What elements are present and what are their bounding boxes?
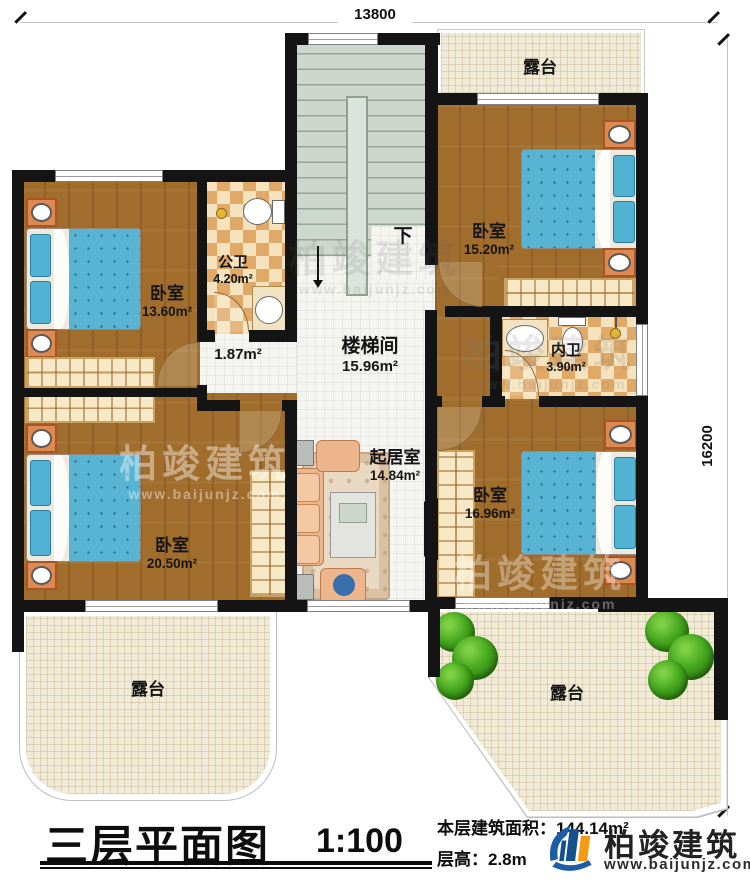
bush [436, 662, 474, 700]
room-label-bedroom-bottom-left: 卧室 20.50m² [147, 536, 197, 572]
plan-title: 三层平面图 [45, 812, 270, 874]
armchair [320, 568, 366, 604]
room-label-stairwell: 楼梯间 15.96m² [341, 336, 398, 376]
bed [521, 149, 639, 249]
room-name: 卧室 [142, 284, 192, 304]
room-label-bedroom-top-left: 卧室 13.60m² [142, 284, 192, 320]
toilet-tank [558, 317, 586, 326]
bed-quilt [69, 229, 140, 329]
sink-basin [506, 325, 544, 352]
bed-pillows [610, 150, 638, 248]
sofa-cushion [294, 504, 320, 533]
toilet-bowl [243, 198, 272, 225]
floor-drain [216, 208, 227, 219]
window [307, 600, 410, 612]
wall [249, 330, 297, 342]
pillow [613, 201, 635, 243]
window [636, 324, 648, 396]
closet [504, 278, 636, 308]
nightstand [603, 248, 636, 277]
room-label-public-bath: 公卫 4.20m² [213, 254, 253, 286]
stair-direction-arrow [317, 246, 319, 282]
pillow [30, 460, 51, 506]
room-name: 公卫 [213, 254, 253, 272]
cushion-throw [333, 574, 355, 596]
floor-height-value: 2.8m [488, 850, 527, 869]
room-area: 15.96m² [341, 358, 398, 376]
wall [425, 398, 437, 610]
wall [425, 33, 438, 265]
room-name: 起居室 [370, 448, 421, 468]
armchair [316, 440, 360, 472]
wall [445, 306, 648, 317]
room-label-terrace-bottom-left: 露台 [131, 680, 165, 700]
bed-quilt [522, 150, 595, 248]
room-area: 15.20m² [464, 242, 514, 258]
nightstand [603, 120, 636, 149]
floor-area-label: 本层建筑面积： [437, 819, 556, 838]
bed [26, 454, 141, 562]
window [308, 33, 378, 45]
nightstand [604, 556, 637, 585]
room-name: 楼梯间 [341, 336, 398, 358]
bush [648, 660, 688, 700]
coffee-table [330, 492, 376, 558]
closet [250, 470, 290, 597]
sink-basin [255, 296, 283, 324]
window [477, 93, 599, 105]
bed [26, 228, 141, 330]
table-decor [339, 503, 367, 523]
room-name: 卧室 [147, 536, 197, 556]
wall [539, 396, 648, 407]
bed-pillows [27, 229, 54, 329]
wall [285, 33, 297, 182]
room-name: 露台 [131, 680, 165, 700]
stair-down-text: 下 [393, 226, 412, 248]
wall [12, 388, 207, 397]
room-label-living-room: 起居室 14.84m² [370, 448, 421, 484]
title-underline [40, 861, 432, 865]
wall [282, 400, 297, 411]
stair-arrow-head [313, 280, 323, 288]
wall [482, 396, 505, 407]
dimension-value-right: 16200 [699, 415, 719, 477]
pillow [614, 505, 636, 549]
floor-height-label: 层高： [437, 850, 488, 869]
room-name: 内卫 [546, 342, 586, 360]
pillow [614, 457, 636, 501]
bed-pillows [611, 452, 639, 554]
nightstand [26, 198, 57, 227]
bed-quilt [69, 455, 140, 561]
room-name: 露台 [523, 58, 557, 78]
wall [197, 330, 215, 342]
floor-height-row: 层高：2.8m [437, 845, 527, 870]
room-label-bedroom-right: 卧室 16.96m² [465, 486, 515, 522]
shower-head [610, 328, 621, 339]
wall [285, 182, 297, 342]
pillow [30, 510, 51, 556]
wall [425, 310, 437, 398]
room-area: 16.96m² [465, 506, 515, 522]
title-underline [40, 867, 432, 869]
stair-center-rail [346, 96, 368, 296]
nightstand [26, 329, 57, 358]
wall [598, 598, 728, 612]
bed [521, 451, 640, 555]
wall [197, 182, 207, 330]
floor-area-row: 本层建筑面积：144.14m² [437, 814, 629, 839]
window [455, 597, 550, 609]
wall [428, 396, 442, 407]
wall [12, 612, 24, 652]
bed-sheet-fold [596, 452, 611, 554]
stair-down-label: 下 [393, 226, 412, 248]
bed-sheet-fold [595, 150, 610, 248]
room-label-bedroom-top-right: 卧室 15.20m² [464, 222, 514, 258]
bed-sheet-fold [54, 455, 69, 561]
dimension-value-top: 13800 [338, 6, 412, 26]
nightstand [26, 424, 57, 453]
wardrobe [437, 450, 475, 600]
pillow [30, 234, 51, 277]
brand-logo-icon [543, 818, 599, 876]
wall [714, 598, 728, 720]
nightstand [604, 420, 637, 449]
room-area: 20.50m² [147, 556, 197, 572]
room-area: 14.84m² [370, 468, 421, 484]
room-label-terrace-bottom-right: 露台 [550, 684, 584, 704]
terrace-bottom-left-floor [20, 610, 276, 800]
window [55, 170, 163, 182]
room-label-inner-bath: 内卫 3.90m² [546, 342, 586, 374]
bed-pillows [27, 455, 54, 561]
room-area: 1.87m² [214, 346, 262, 364]
wall [285, 402, 297, 612]
toilet-tank [272, 200, 285, 224]
bed-quilt [522, 452, 596, 554]
wardrobe [25, 357, 155, 388]
room-area: 13.60m² [142, 304, 192, 320]
wardrobe [25, 394, 155, 423]
room-label-terrace-top: 露台 [523, 58, 557, 78]
pillow [30, 281, 51, 324]
room-name: 卧室 [464, 222, 514, 242]
room-name: 卧室 [465, 486, 515, 506]
nightstand [26, 561, 57, 590]
room-label-hall: 1.87m² [214, 346, 262, 364]
brand-url: www.baijunjz.com [604, 856, 750, 873]
wall [490, 306, 502, 407]
plan-scale: 1:100 [316, 822, 403, 861]
room-area: 3.90m² [546, 360, 586, 375]
wall [197, 400, 240, 411]
floor-plan-canvas: 13800 16200 [0, 0, 750, 884]
pillow [613, 155, 635, 197]
sliding-door [85, 600, 218, 612]
room-name: 露台 [550, 684, 584, 704]
sofa-cushion [294, 535, 320, 564]
sofa-cushion [294, 473, 320, 502]
wall [428, 607, 440, 677]
room-area: 4.20m² [213, 272, 253, 287]
bed-sheet-fold [54, 229, 69, 329]
